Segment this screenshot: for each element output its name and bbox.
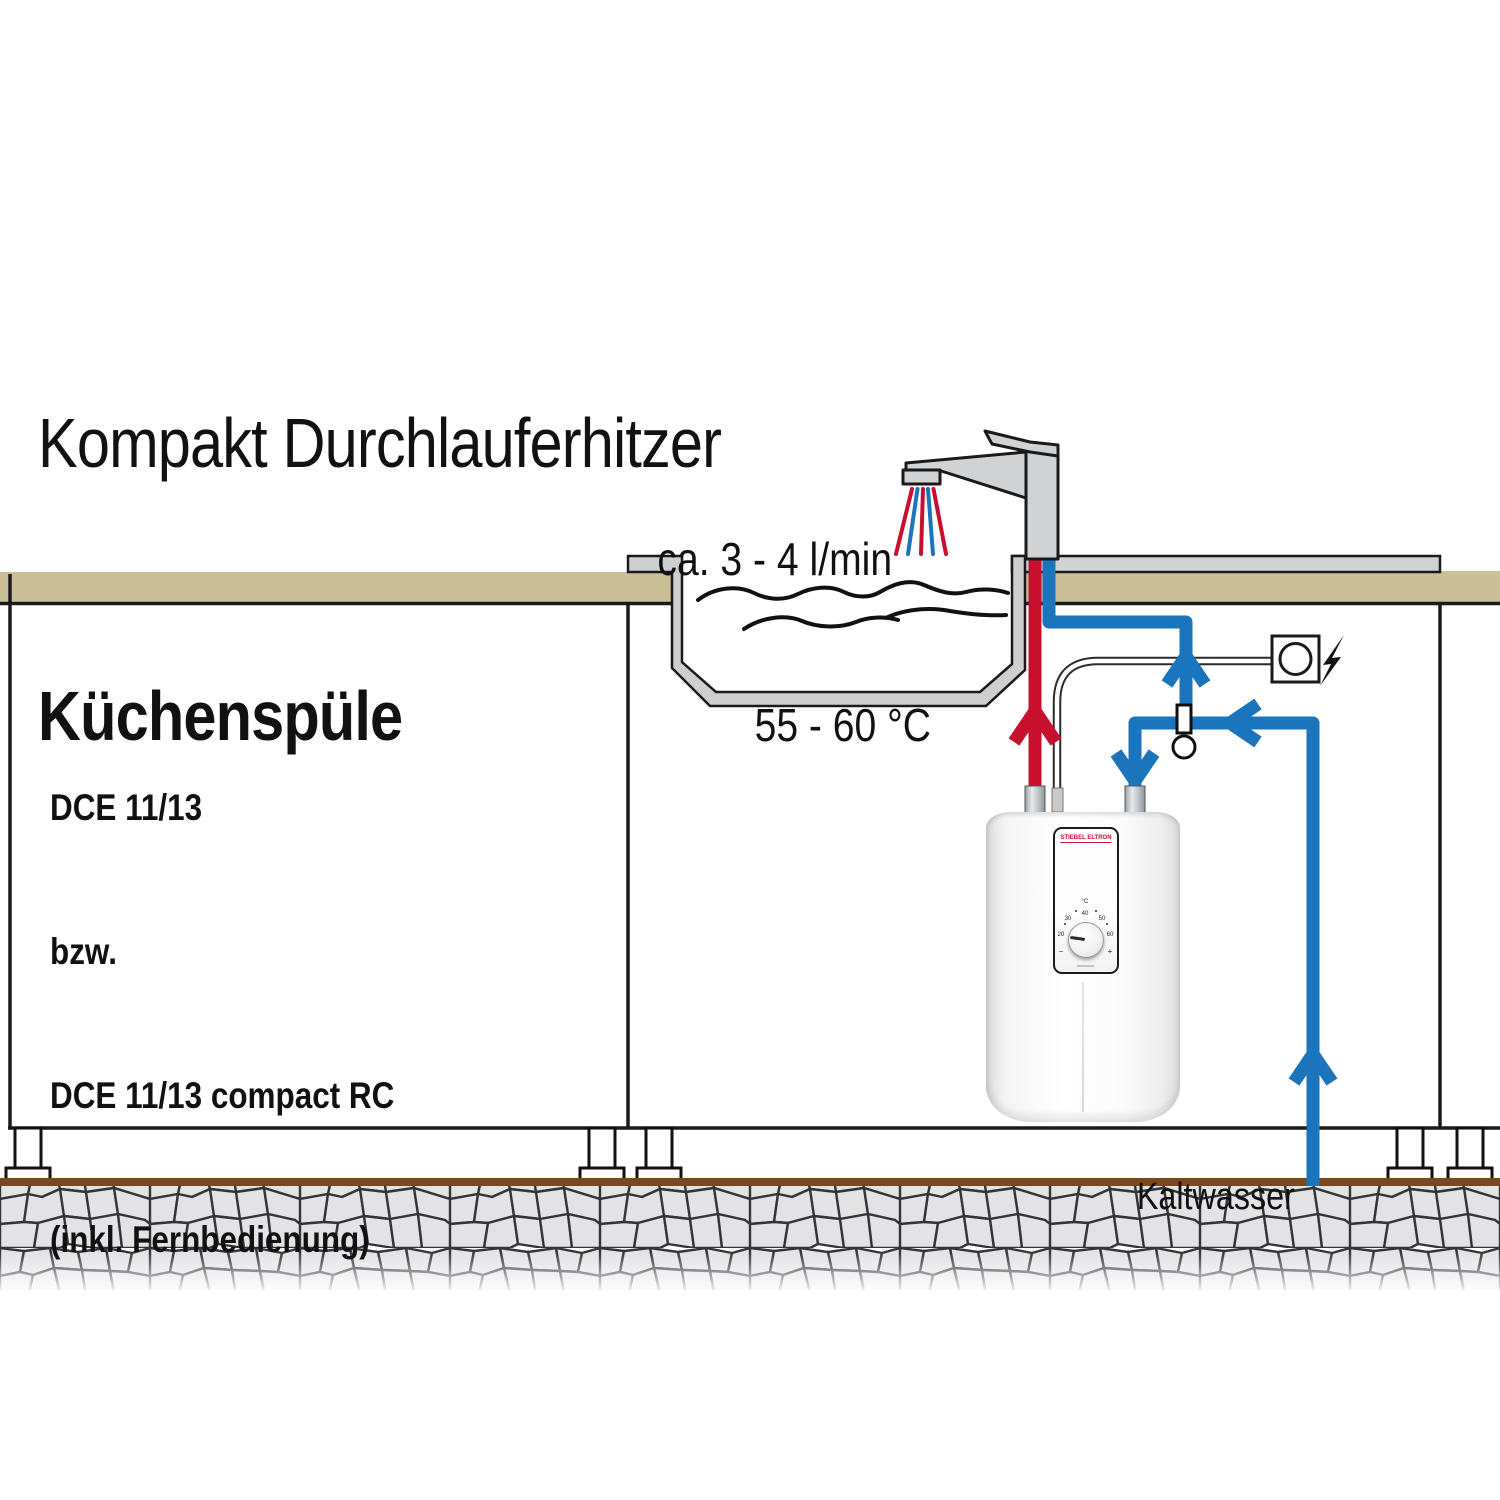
dial-scale-40: 40 <box>1082 911 1089 917</box>
dial-scale-20: 20 <box>1058 932 1065 938</box>
pipe-fittings <box>1025 786 1145 813</box>
heater-control-panel: STIEBEL ELTRON °C 40 30 50 20 60 − + <box>1053 827 1119 974</box>
faucet-spray-head <box>903 470 940 484</box>
dial-plus-label: + <box>1108 949 1113 955</box>
faucet-column <box>1026 449 1058 559</box>
water-heater-unit: STIEBEL ELTRON °C 40 30 50 20 60 − + <box>986 812 1180 1122</box>
spec-mix-group: Mischwassermenge bei 38 °C ca. 6 l/min <box>50 1402 455 1500</box>
flow-rate-label: ca. 3 - 4 l/min <box>556 478 892 586</box>
spec-model-line: bzw. <box>50 928 394 976</box>
panel-small-print <box>1077 965 1094 967</box>
dial-tick <box>1095 910 1097 912</box>
spec-model-line: (inkl. Fernbedienung) <box>50 1216 394 1264</box>
shutoff-valve <box>1173 705 1195 758</box>
spec-model-line: DCE 11/13 compact RC <box>50 1072 394 1120</box>
countertop-right <box>1025 571 1500 602</box>
dial-scale-30: 30 <box>1065 916 1072 922</box>
brand-logo: STIEBEL ELTRON <box>1060 835 1111 843</box>
spec-text-block: DCE 11/13 bzw. DCE 11/13 compact RC (ink… <box>50 688 455 1500</box>
dial-tick <box>1064 923 1066 925</box>
dial-scale-50: 50 <box>1099 916 1106 922</box>
cabinet-foot <box>580 1128 624 1181</box>
diagram-page: STIEBEL ELTRON °C 40 30 50 20 60 − + Kom… <box>0 0 1500 1500</box>
faucet <box>903 431 1058 559</box>
dial-unit-label: °C <box>1082 899 1089 905</box>
sink-temperature-label: 55 - 60 °C <box>640 644 1020 752</box>
knob-pointer <box>1070 936 1085 941</box>
cabinet-foot <box>1388 1128 1432 1181</box>
spec-model-line: DCE 11/13 <box>50 784 394 832</box>
cold-fitting <box>1125 786 1145 813</box>
cold-water-label: Kaltwasser <box>1030 1133 1295 1219</box>
dial-minus-label: − <box>1059 949 1064 955</box>
dial-scale-60: 60 <box>1107 932 1114 938</box>
cabinet-foot <box>637 1128 681 1181</box>
cabinet-foot <box>1448 1128 1492 1181</box>
hot-fitting <box>1025 786 1045 813</box>
lightning-bolt-icon <box>1320 635 1344 686</box>
water-spray <box>896 489 946 554</box>
dial-tick <box>1075 910 1077 912</box>
cabinet-foot <box>6 1128 50 1181</box>
temperature-knob[interactable] <box>1068 922 1104 958</box>
power-outlet <box>1272 636 1319 682</box>
title-line-1: Kompakt Durchlauferhitzer <box>38 398 721 489</box>
water-wave-3 <box>888 609 1006 617</box>
cord-ferrule <box>1052 788 1063 812</box>
heater-body-seam <box>1082 982 1084 1112</box>
sink-deck <box>1012 556 1440 572</box>
dial-tick <box>1106 923 1108 925</box>
